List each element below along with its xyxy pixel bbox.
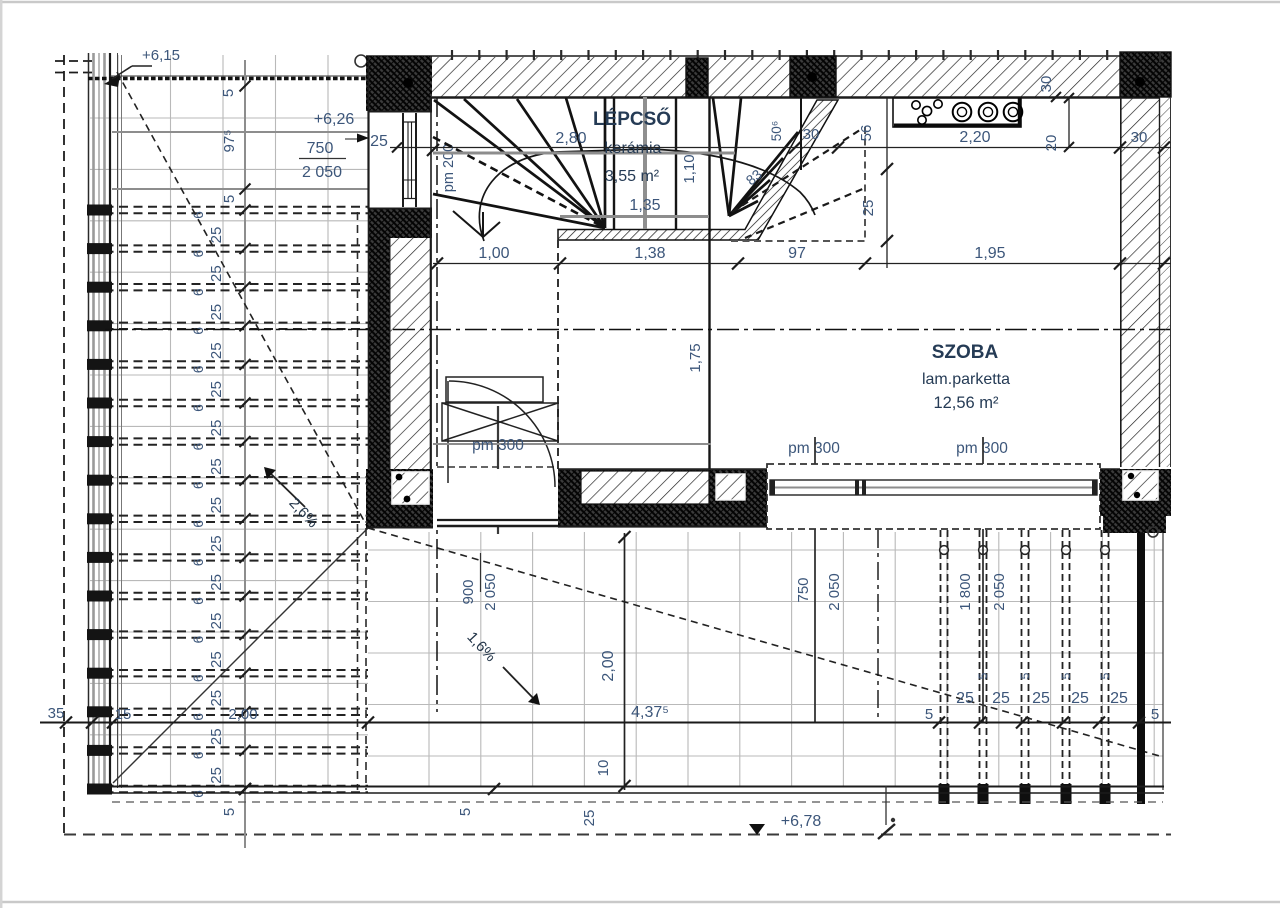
svg-text:2,00: 2,00 <box>228 706 257 723</box>
svg-text:6: 6 <box>190 790 206 798</box>
svg-text:pm 300: pm 300 <box>472 437 524 454</box>
svg-text:2,00: 2,00 <box>600 650 617 681</box>
svg-text:5: 5 <box>925 706 933 723</box>
svg-text:97: 97 <box>788 245 806 262</box>
svg-text:25: 25 <box>581 810 598 827</box>
svg-text:6: 6 <box>190 442 206 450</box>
svg-text:1,00: 1,00 <box>478 245 509 262</box>
svg-text:25: 25 <box>208 342 225 359</box>
svg-text:3,55 m²: 3,55 m² <box>605 168 660 185</box>
svg-text:25: 25 <box>860 200 877 217</box>
svg-text:15: 15 <box>115 706 132 723</box>
svg-text:25: 25 <box>1032 690 1050 707</box>
svg-text:25: 25 <box>208 265 225 282</box>
svg-text:6: 6 <box>190 288 206 296</box>
svg-text:25: 25 <box>956 690 974 707</box>
svg-text:6: 6 <box>190 751 206 759</box>
svg-text:750: 750 <box>795 577 812 602</box>
svg-text:900: 900 <box>460 579 477 604</box>
svg-text:2 050: 2 050 <box>991 573 1008 611</box>
svg-text:12,56 m²: 12,56 m² <box>933 394 999 412</box>
svg-text:5: 5 <box>220 89 237 97</box>
svg-text:pm 200: pm 200 <box>441 144 457 192</box>
svg-text:5: 5 <box>221 808 238 816</box>
svg-text:25: 25 <box>208 767 225 784</box>
svg-text:1,75: 1,75 <box>687 343 704 372</box>
svg-text:2,20: 2,20 <box>959 129 990 146</box>
svg-text:30: 30 <box>1038 76 1055 93</box>
svg-text:6: 6 <box>190 713 206 721</box>
svg-text:25: 25 <box>208 690 225 707</box>
svg-text:SZOBA: SZOBA <box>932 342 999 363</box>
svg-text:25: 25 <box>370 133 388 150</box>
svg-text:25: 25 <box>208 497 225 514</box>
svg-text:97⁵: 97⁵ <box>221 130 238 153</box>
svg-text:25: 25 <box>992 690 1010 707</box>
svg-text:25: 25 <box>208 304 225 321</box>
svg-text:5: 5 <box>221 195 238 203</box>
svg-text:2,80: 2,80 <box>555 130 586 147</box>
svg-text:6: 6 <box>190 327 206 335</box>
svg-text:6: 6 <box>190 365 206 373</box>
svg-text:56: 56 <box>858 125 875 142</box>
svg-text:30: 30 <box>1131 129 1148 146</box>
svg-text:6: 6 <box>190 404 206 412</box>
svg-text:5: 5 <box>457 808 474 816</box>
svg-text:30: 30 <box>803 126 820 143</box>
svg-text:kerámia: kerámia <box>605 140 662 157</box>
svg-text:35: 35 <box>48 705 65 722</box>
svg-text:1,35: 1,35 <box>629 197 660 214</box>
svg-text:1,95: 1,95 <box>974 245 1005 262</box>
svg-text:6: 6 <box>190 211 206 219</box>
svg-text:1,10: 1,10 <box>681 154 698 183</box>
svg-text:25: 25 <box>208 381 225 398</box>
svg-text:6: 6 <box>190 520 206 528</box>
svg-text:25: 25 <box>1071 690 1089 707</box>
svg-text:2 050: 2 050 <box>302 164 342 181</box>
svg-text:+6,15: +6,15 <box>142 47 180 64</box>
svg-text:50⁶: 50⁶ <box>769 121 784 142</box>
svg-text:25: 25 <box>1110 690 1128 707</box>
svg-text:6: 6 <box>190 249 206 257</box>
svg-text:6: 6 <box>190 558 206 566</box>
svg-text:25: 25 <box>208 651 225 668</box>
svg-text:25: 25 <box>208 574 225 591</box>
svg-text:2 050: 2 050 <box>482 573 499 611</box>
svg-text:2 050: 2 050 <box>826 573 843 611</box>
svg-text:20: 20 <box>1043 135 1060 152</box>
svg-text:lam.parketta: lam.parketta <box>922 371 1010 388</box>
svg-text:1 800: 1 800 <box>957 573 974 611</box>
svg-text:25: 25 <box>208 728 225 745</box>
svg-text:6: 6 <box>190 597 206 605</box>
svg-text:25: 25 <box>208 613 225 630</box>
svg-text:5: 5 <box>1059 672 1073 679</box>
svg-text:5: 5 <box>1151 706 1159 723</box>
svg-text:25: 25 <box>208 420 225 437</box>
svg-text:6: 6 <box>190 635 206 643</box>
svg-text:750: 750 <box>307 140 334 157</box>
svg-text:5: 5 <box>976 672 990 679</box>
svg-text:6: 6 <box>190 481 206 489</box>
svg-text:25: 25 <box>208 458 225 475</box>
svg-text:LÉPCSŐ: LÉPCSŐ <box>593 108 671 130</box>
svg-text:4,37⁵: 4,37⁵ <box>631 704 669 721</box>
svg-text:+6,26: +6,26 <box>314 111 355 128</box>
svg-text:5: 5 <box>1098 672 1112 679</box>
svg-text:10: 10 <box>595 760 612 777</box>
svg-text:1,38: 1,38 <box>634 245 665 262</box>
svg-text:5: 5 <box>1018 672 1032 679</box>
svg-text:25: 25 <box>208 535 225 552</box>
svg-text:+6,78: +6,78 <box>781 813 822 830</box>
svg-text:6: 6 <box>190 674 206 682</box>
